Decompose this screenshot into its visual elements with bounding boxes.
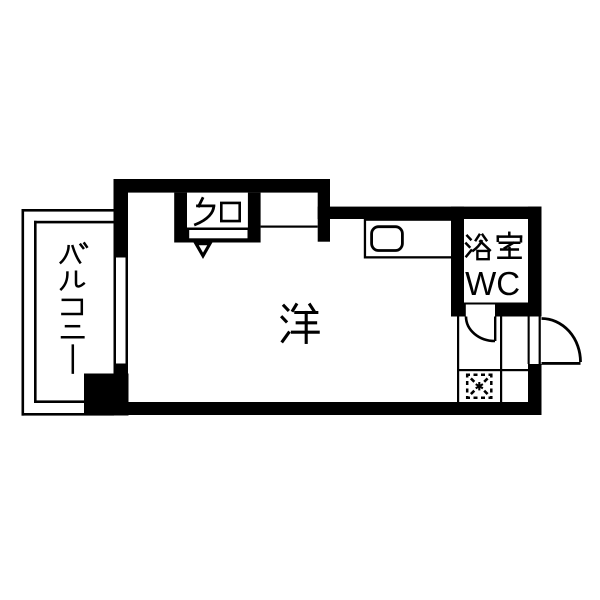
svg-text:WC: WC xyxy=(465,265,520,302)
